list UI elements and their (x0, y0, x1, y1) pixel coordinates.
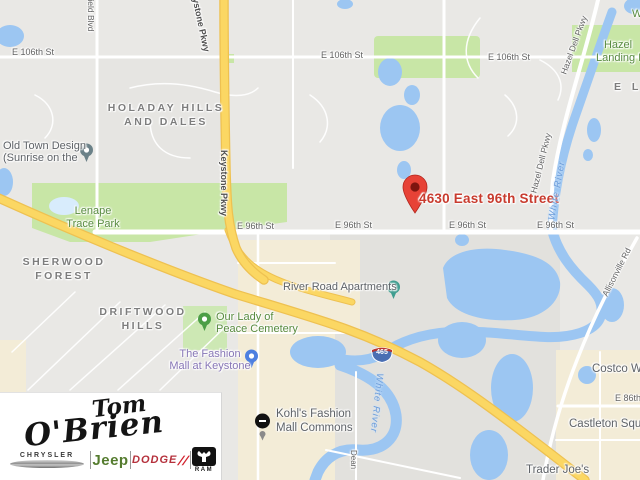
dealer-signature: Tom O'Brien (0, 393, 221, 447)
street-label-keystone-pkwy-mid: Keystone Pkwy (219, 150, 229, 216)
poi-label-costco[interactable]: Costco Wh (592, 363, 640, 375)
poi-label-kohls-line1[interactable]: Kohl's Fashion (276, 408, 351, 420)
park-label-hazel-landing-line2[interactable]: Landing Par (596, 52, 640, 64)
street-label-e96th-3: E 96th St (449, 220, 486, 230)
park-label-our-lady-line1[interactable]: Our Lady of (216, 311, 273, 323)
dealer-logo-panel: Tom O'Brien CHRYSLER Jeep DODGE // (0, 392, 222, 480)
poi-label-fashion-mall-line2[interactable]: Mall at Keystone (166, 360, 254, 372)
street-label-e96th-4: E 96th St (537, 220, 574, 230)
jeep-logo: Jeep (92, 452, 128, 469)
neighborhood-driftwood-line2: HILLS (95, 320, 191, 332)
park-label-hazel-landing-line1[interactable]: Hazel (590, 39, 640, 51)
park-label-w-corner: W (632, 8, 640, 20)
poi-label-old-town-line2[interactable]: (Sunrise on the (3, 152, 78, 164)
ram-head-icon (192, 447, 216, 466)
street-label-e96th-1: E 96th St (237, 221, 274, 231)
map-screenshot: 4630 East 96th Street E 106th St E 106th… (0, 0, 640, 480)
kohls-logo-icon[interactable] (254, 413, 271, 441)
street-label-e106th-west: E 106th St (12, 47, 54, 57)
poi-label-kohls-line2[interactable]: Mall Commons (276, 422, 353, 434)
street-label-westfield-blvd: field Blvd (86, 0, 96, 32)
street-label-e106th-center: E 106th St (321, 50, 363, 60)
park-label-our-lady-line2[interactable]: Peace Cemetery (216, 323, 298, 335)
dodge-logo: DODGE // (132, 453, 189, 468)
poi-label-fashion-mall-line1[interactable]: The Fashion (175, 348, 245, 360)
neighborhood-el-partial: E L (614, 81, 640, 93)
brand-logo-strip: CHRYSLER Jeep DODGE // RAM (5, 445, 216, 475)
street-label-e106th-east: E 106th St (488, 52, 530, 62)
interstate-465-shield: 465 (371, 349, 393, 356)
poi-label-river-road-apartments[interactable]: River Road Apartments (283, 281, 397, 293)
neighborhood-sherwood-line2: FOREST (16, 270, 112, 282)
poi-label-castleton-square[interactable]: Castleton Squar (569, 418, 640, 430)
neighborhood-holaday-line1: HOLADAY HILLS (100, 102, 232, 114)
neighborhood-holaday-line2: AND DALES (100, 116, 232, 128)
neighborhood-driftwood-line1: DRIFTWOOD (95, 306, 191, 318)
street-label-e96th-2: E 96th St (335, 220, 372, 230)
our-lady-of-peace-pin-icon[interactable] (197, 312, 212, 332)
neighborhood-sherwood-line1: SHERWOOD (16, 256, 112, 268)
park-label-lenape-line2[interactable]: Trace Park (50, 218, 136, 230)
park-label-lenape-line1[interactable]: Lenape (55, 205, 131, 217)
brand-divider (90, 451, 91, 469)
street-label-e86th: E 86th (615, 393, 640, 403)
ram-logo: RAM (192, 447, 216, 473)
poi-label-trader-joes[interactable]: Trader Joe's (526, 464, 589, 476)
chrysler-logo: CHRYSLER (5, 452, 89, 468)
chrysler-wing-icon (10, 460, 84, 468)
brand-divider (130, 451, 131, 469)
street-label-dean-rd: Dean (349, 450, 358, 469)
poi-label-old-town-line1[interactable]: Old Town Design (3, 140, 86, 152)
